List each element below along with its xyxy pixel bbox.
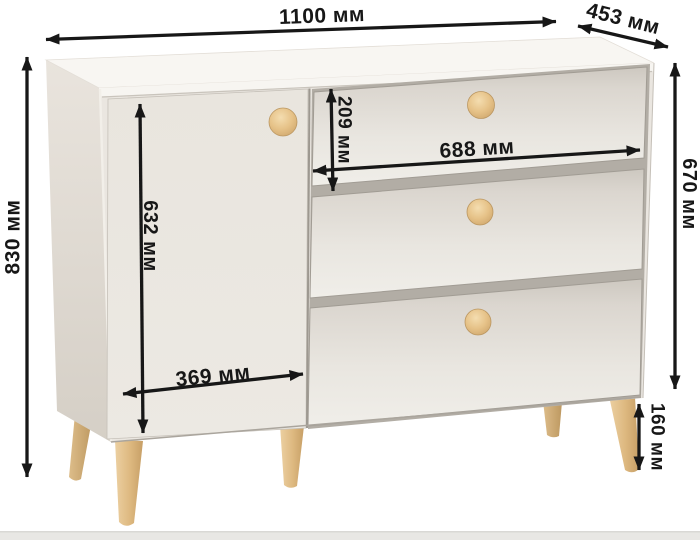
dim-label-door-height: 632 мм [140,200,160,272]
door-knob [269,108,297,136]
dimension-diagram: 1100 мм 453 мм 830 мм 670 мм 160 мм 209 … [0,0,700,540]
dim-label-leg-height: 160 мм [648,403,667,471]
leg-front-middle [280,425,304,488]
dim-label-overall-height: 830 мм [3,200,24,275]
dim-label-carcass-height: 670 мм [679,158,699,230]
drawer-middle-knob [467,199,493,225]
floor-strip-edge [0,531,700,533]
drawer-top-knob [468,92,495,119]
dim-label-overall-width: 1100 мм [279,4,366,28]
dresser-illustration [0,0,700,540]
drawer-bottom-knob [465,309,491,335]
dim-label-top-drawer-height: 209 мм [335,96,354,164]
leg-front-left [115,440,143,526]
dim-label-drawer-front-width: 688 мм [439,136,515,162]
leg-front-right [609,396,639,472]
